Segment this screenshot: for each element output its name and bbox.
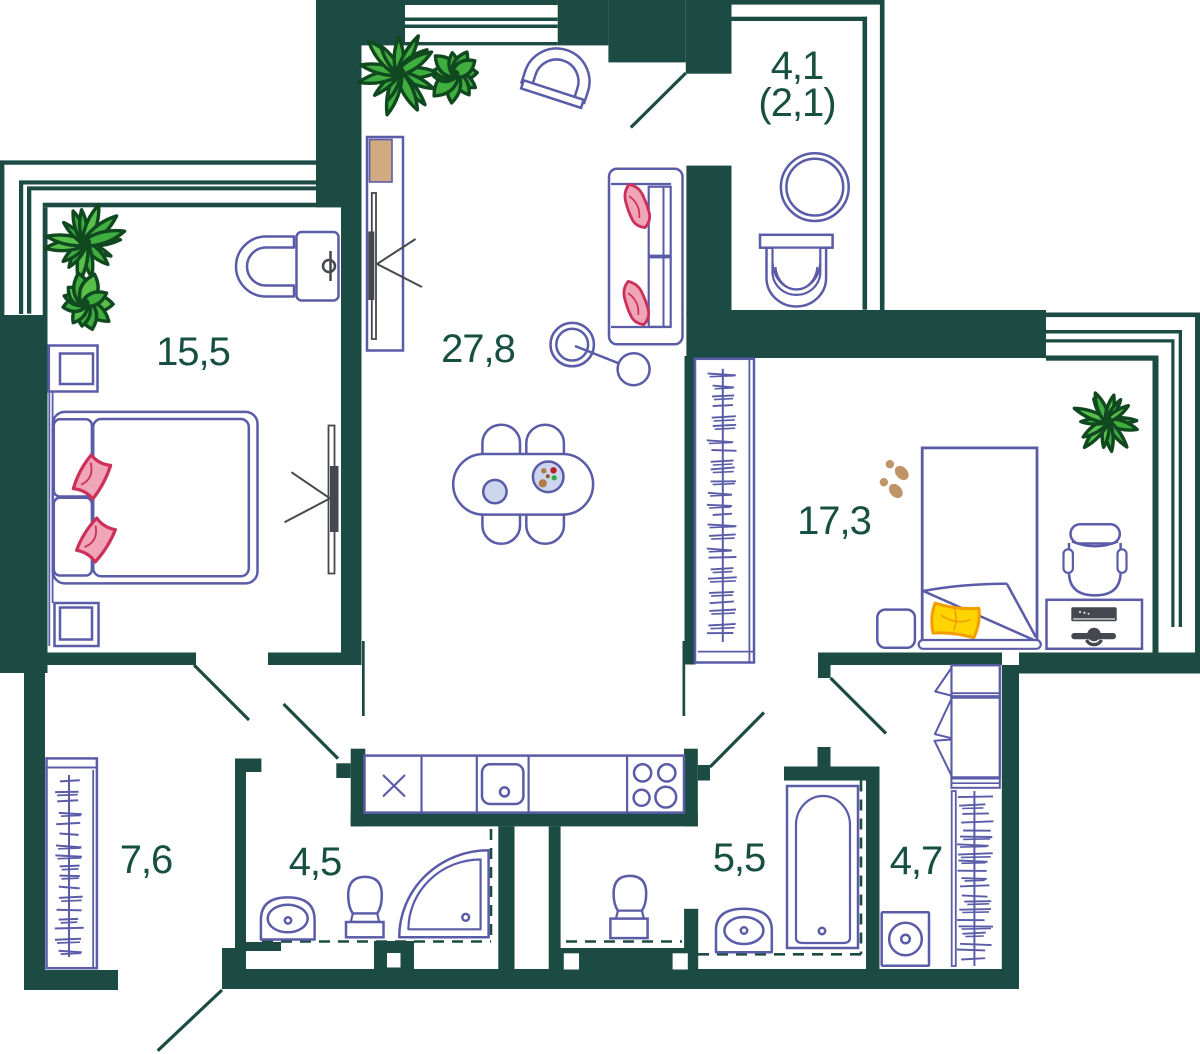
svg-text:5,5: 5,5 — [713, 836, 766, 880]
svg-text:15,5: 15,5 — [156, 330, 230, 374]
svg-text:27,8: 27,8 — [441, 327, 515, 371]
svg-text:(2,1): (2,1) — [758, 81, 835, 125]
svg-text:7,6: 7,6 — [120, 838, 173, 882]
svg-text:4,5: 4,5 — [289, 840, 342, 884]
svg-text:17,3: 17,3 — [797, 499, 871, 543]
svg-text:4,7: 4,7 — [890, 839, 943, 883]
